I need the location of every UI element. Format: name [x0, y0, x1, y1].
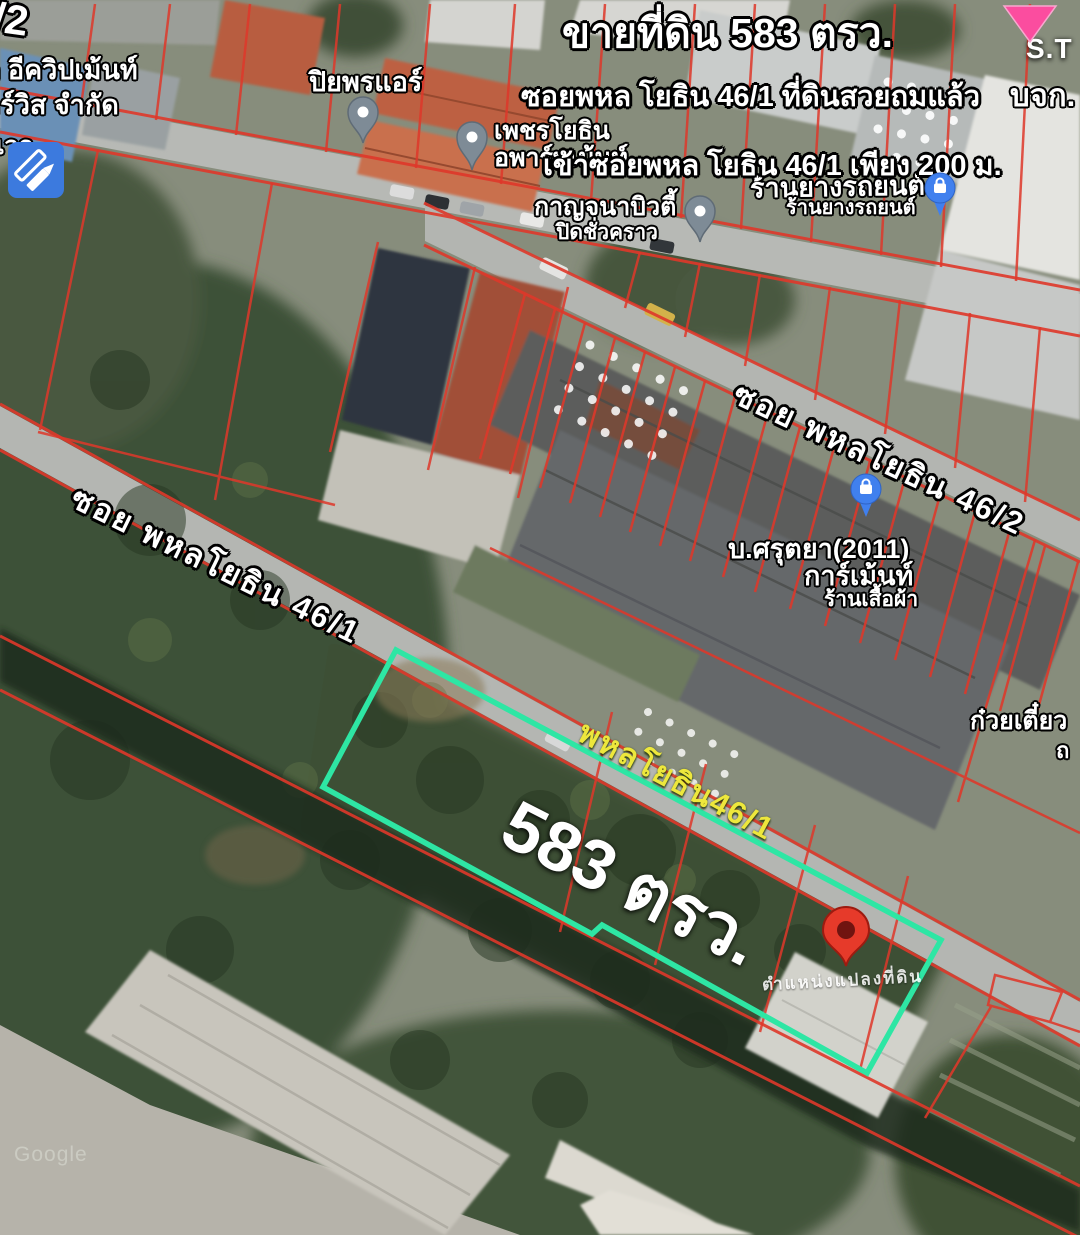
label-sarutaya-line2[interactable]: การ์เม้นท์ [804, 562, 913, 590]
triangle-marker-icon [1002, 4, 1058, 44]
pin-tire-shop[interactable] [923, 172, 957, 218]
map-canvas[interactable]: ขายที่ดิน 583 ตรว. ซอยพหล โยธิน 46/1 ที่… [0, 0, 1080, 1235]
label-kanjana-beauty[interactable]: กาญจนาบิวตี้ [534, 194, 676, 220]
sale-title: ขายที่ดิน 583 ตรว. [562, 12, 893, 55]
sale-subtitle-1: ซอยพหล โยธิน 46/1 ที่ดินสวยถมแล้ว [521, 82, 980, 112]
label-kanjana-closed: ปิดชั่วคราว [556, 222, 658, 244]
label-sarutaya-line3: ร้านเสื้อผ้า [824, 589, 918, 611]
google-watermark: Google [14, 1144, 88, 1166]
label-sarutaya-line1[interactable]: บ.ศรุตยา(2011) [728, 535, 909, 563]
edit-markup-icon[interactable] [6, 140, 68, 202]
label-equipment-company-line1[interactable]: ก อีควิปเม้นท์ [0, 56, 138, 84]
label-phet-apartment-line1[interactable]: เพชรโยธิน [494, 118, 610, 144]
pin-piyaporn-air[interactable] [345, 95, 381, 145]
pin-kanjana-beauty[interactable] [682, 194, 718, 244]
label-noodle-shop-partial: ถ [1056, 740, 1069, 763]
label-tire-shop-small[interactable]: ร้านยางรถยนต์ [786, 198, 916, 219]
pin-parcel-location[interactable] [818, 906, 874, 968]
pin-phet-apartment[interactable] [454, 120, 490, 172]
label-bjk: บจก. [1010, 80, 1075, 112]
label-noodle-shop[interactable]: ก๋วยเตี๋ยว [970, 708, 1067, 734]
label-equipment-company-line2[interactable]: อร์วิส จำกัด [0, 91, 119, 119]
label-piyaporn-air[interactable]: ปิยพรแอร์ [309, 68, 422, 96]
pin-sarutaya-garment[interactable] [849, 473, 883, 519]
